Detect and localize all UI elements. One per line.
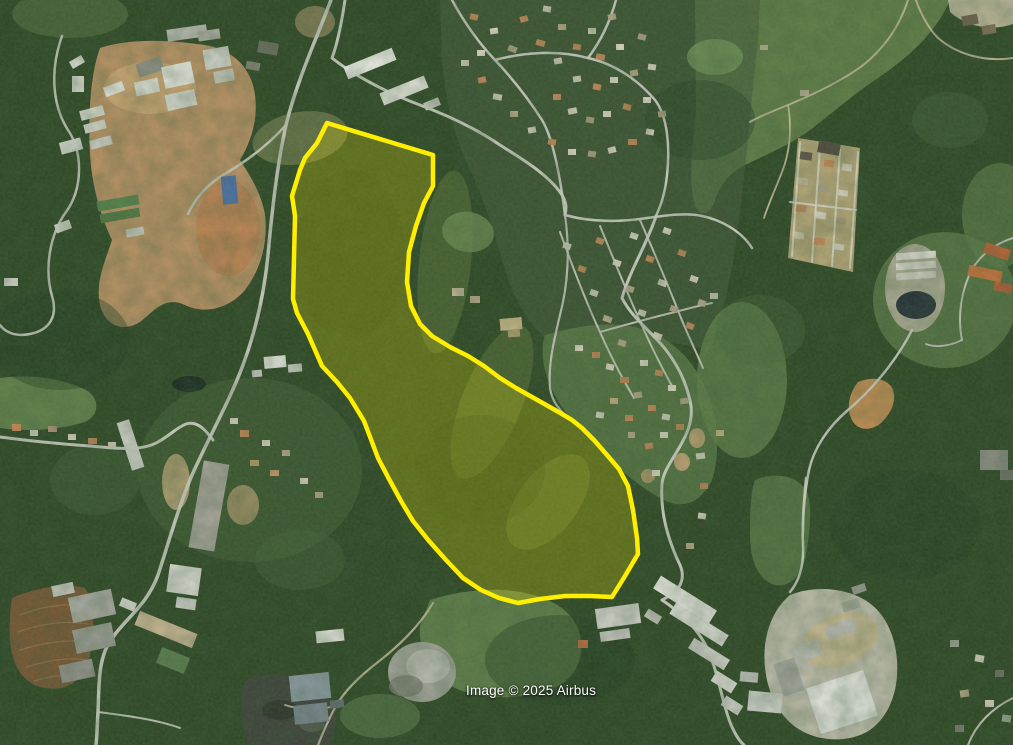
satellite-canvas[interactable] — [0, 0, 1013, 745]
google-earth-viewport[interactable]: Image © 2025 Airbus — [0, 0, 1013, 745]
canopy-texture-light — [0, 0, 1013, 745]
